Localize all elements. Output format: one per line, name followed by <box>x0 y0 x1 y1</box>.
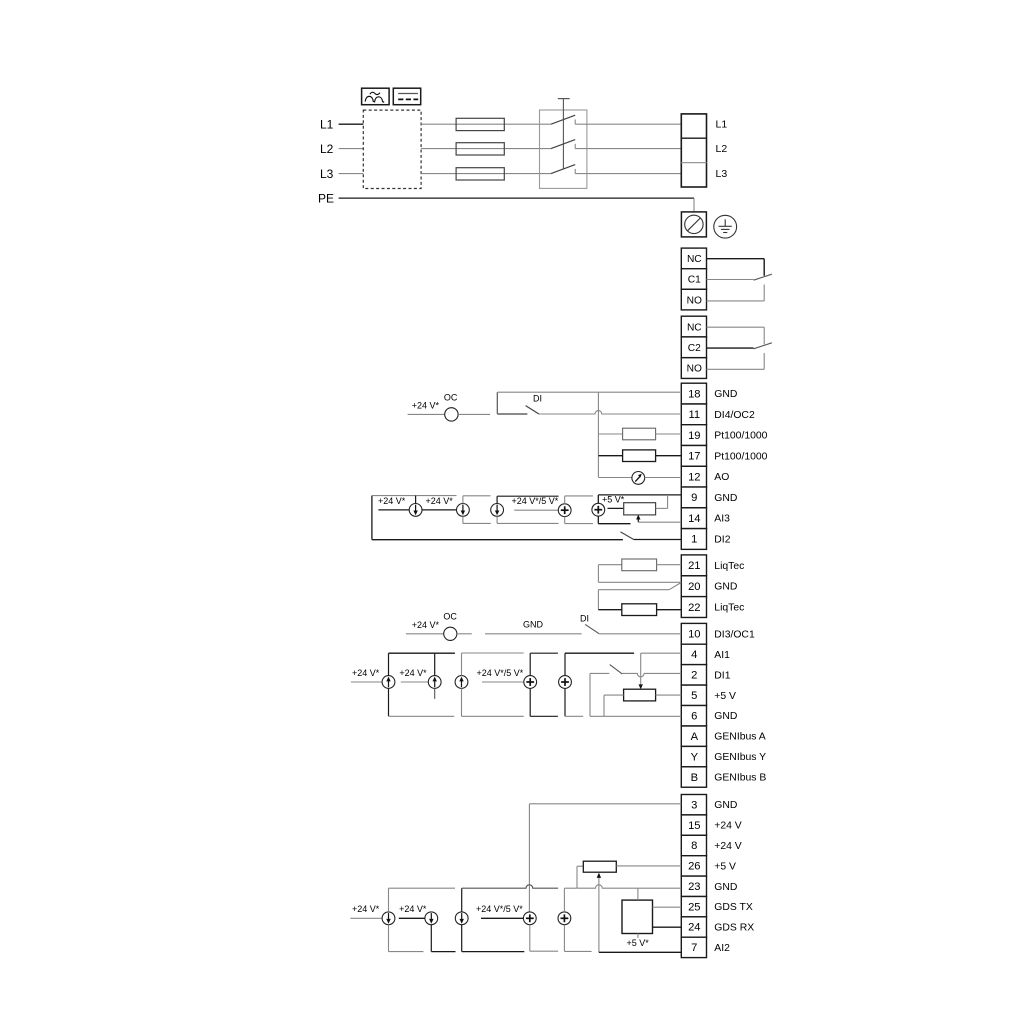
svg-text:+24 V*: +24 V* <box>426 496 454 506</box>
svg-text:+5 V*: +5 V* <box>602 495 625 505</box>
svg-text:+24 V*/5 V*: +24 V*/5 V* <box>512 496 559 506</box>
svg-text:L1: L1 <box>716 119 728 131</box>
svg-text:DI3/OC1: DI3/OC1 <box>714 629 755 640</box>
svg-text:DI1: DI1 <box>714 670 730 681</box>
svg-text:DI4/OC2: DI4/OC2 <box>714 410 755 421</box>
svg-text:DI: DI <box>533 393 542 403</box>
svg-text:11: 11 <box>688 409 700 421</box>
svg-text:5: 5 <box>691 690 697 702</box>
svg-text:15: 15 <box>688 820 700 832</box>
svg-text:23: 23 <box>688 881 700 893</box>
svg-text:+24 V*: +24 V* <box>412 400 440 410</box>
svg-text:A: A <box>691 731 699 743</box>
svg-text:Y: Y <box>691 751 699 763</box>
svg-text:+24 V: +24 V <box>714 841 742 852</box>
svg-text:GND: GND <box>714 389 737 400</box>
svg-text:Pt100/1000: Pt100/1000 <box>714 431 767 442</box>
svg-text:L3: L3 <box>320 167 334 181</box>
svg-text:L3: L3 <box>716 168 728 180</box>
svg-text:20: 20 <box>688 581 700 593</box>
svg-text:L1: L1 <box>320 117 334 131</box>
svg-text:8: 8 <box>691 840 697 852</box>
svg-text:GND: GND <box>523 620 544 630</box>
svg-text:18: 18 <box>688 388 700 400</box>
svg-text:21: 21 <box>688 560 700 572</box>
svg-text:7: 7 <box>691 942 697 954</box>
svg-text:AO: AO <box>714 472 729 483</box>
svg-text:+24 V: +24 V <box>714 821 742 832</box>
svg-text:17: 17 <box>688 451 700 463</box>
svg-text:L2: L2 <box>320 142 334 156</box>
svg-text:24: 24 <box>688 922 700 934</box>
svg-text:LiqTec: LiqTec <box>714 603 744 614</box>
svg-text:12: 12 <box>688 471 700 483</box>
svg-text:+24 V*/5 V*: +24 V*/5 V* <box>476 904 523 914</box>
svg-text:GDS TX: GDS TX <box>714 902 753 913</box>
svg-text:OC: OC <box>444 392 458 402</box>
svg-text:AI3: AI3 <box>714 514 730 525</box>
svg-text:+24 V*: +24 V* <box>352 904 380 914</box>
svg-text:Pt100/1000: Pt100/1000 <box>714 451 767 462</box>
svg-text:+24 V*: +24 V* <box>352 668 380 678</box>
svg-text:+5 V*: +5 V* <box>627 938 650 948</box>
svg-text:2: 2 <box>691 670 697 682</box>
svg-text:GDS RX: GDS RX <box>714 923 754 934</box>
svg-text:25: 25 <box>688 901 700 913</box>
svg-text:GENIbus B: GENIbus B <box>714 773 766 784</box>
svg-text:+5 V: +5 V <box>714 861 736 872</box>
svg-text:4: 4 <box>691 649 697 661</box>
svg-text:GND: GND <box>714 493 737 504</box>
svg-text:DI: DI <box>580 613 589 623</box>
svg-text:+24 V*: +24 V* <box>399 904 427 914</box>
svg-text:OC: OC <box>443 612 457 622</box>
svg-text:C2: C2 <box>688 343 701 354</box>
svg-text:26: 26 <box>688 861 700 873</box>
svg-text:1: 1 <box>691 534 697 546</box>
svg-text:3: 3 <box>691 799 697 811</box>
svg-text:9: 9 <box>691 492 697 504</box>
svg-text:GENIbus A: GENIbus A <box>714 732 765 743</box>
svg-text:+24 V*: +24 V* <box>378 496 406 506</box>
svg-text:PE: PE <box>318 191 334 205</box>
svg-text:AI2: AI2 <box>714 943 730 954</box>
svg-text:+5 V: +5 V <box>714 691 736 702</box>
svg-text:GND: GND <box>714 582 737 593</box>
svg-text:19: 19 <box>688 430 700 442</box>
svg-text:DI2: DI2 <box>714 535 730 546</box>
svg-text:+24 V*: +24 V* <box>399 668 427 678</box>
svg-text:GND: GND <box>714 882 737 893</box>
svg-text:C1: C1 <box>688 275 701 286</box>
svg-text:10: 10 <box>688 629 700 641</box>
svg-text:+24 V*: +24 V* <box>412 620 440 630</box>
svg-text:NC: NC <box>687 322 702 333</box>
svg-text:GENIbus Y: GENIbus Y <box>714 752 766 763</box>
svg-text:6: 6 <box>691 710 697 722</box>
svg-text:+24 V*/5 V*: +24 V*/5 V* <box>477 668 524 678</box>
svg-text:22: 22 <box>688 602 700 614</box>
svg-text:LiqTec: LiqTec <box>714 561 744 572</box>
svg-text:L2: L2 <box>716 143 728 155</box>
svg-text:14: 14 <box>688 513 700 525</box>
svg-text:NO: NO <box>687 295 702 306</box>
svg-text:NC: NC <box>687 254 702 265</box>
svg-text:AI1: AI1 <box>714 650 730 661</box>
svg-text:B: B <box>691 772 698 784</box>
svg-text:NO: NO <box>687 364 702 375</box>
svg-text:GND: GND <box>714 800 737 811</box>
svg-text:GND: GND <box>714 711 737 722</box>
